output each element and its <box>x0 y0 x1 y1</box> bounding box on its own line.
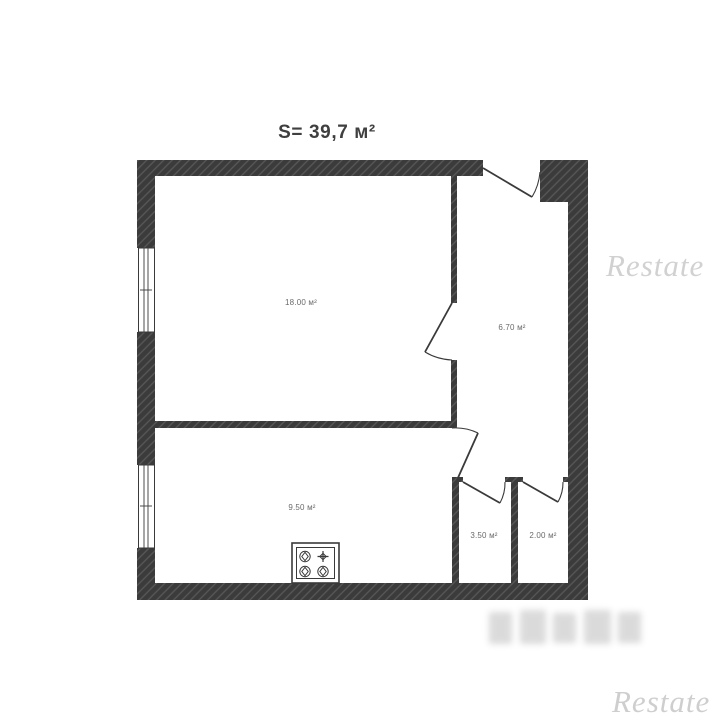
bathroom-door <box>463 482 505 503</box>
wall-top-right-segment <box>540 160 588 176</box>
room-label-toilet: 2.00 м² <box>529 531 556 540</box>
wall-right <box>568 176 588 600</box>
room-label-living-room: 18.00 м² <box>285 298 317 307</box>
wall-bathroom-toilet-divider <box>511 482 518 583</box>
stove-icon <box>292 543 339 583</box>
wall-bathroom-top-middle-stub <box>505 477 523 482</box>
watermark-restate-bottom: Restate <box>611 684 710 719</box>
burner-bottom-left <box>300 566 310 576</box>
wall-livingroom-hall-lower <box>451 360 457 428</box>
entrance-door <box>483 168 540 197</box>
wall-bottom <box>137 583 588 600</box>
window-kitchen <box>139 465 155 548</box>
wall-left-middle <box>137 332 155 465</box>
wall-livingroom-kitchen <box>155 421 451 428</box>
watermark-restate-top: Restate <box>605 248 704 283</box>
room-label-kitchen: 9.50 м² <box>288 503 315 512</box>
wall-left-lower <box>137 548 155 583</box>
burner-bottom-right <box>318 566 328 576</box>
wall-livingroom-hall-upper <box>451 176 457 303</box>
room-label-hallway: 6.70 м² <box>498 323 525 332</box>
wall-left-upper <box>137 176 155 248</box>
burner-top-left <box>300 551 310 561</box>
wall-entrance-jamb <box>540 176 568 202</box>
window-living-room <box>139 248 155 332</box>
interior-walls <box>155 176 568 583</box>
wall-top-left-segment <box>137 160 483 176</box>
floor-plan-canvas: S= 39,7 м² <box>0 0 725 725</box>
wall-bathroom-left <box>452 480 459 583</box>
faded-watermark-blocks <box>489 610 641 644</box>
toilet-door <box>523 482 563 502</box>
kitchen-door <box>452 428 478 480</box>
floor-plan-page: S= 39,7 м² <box>0 0 725 725</box>
living-room-door <box>425 303 452 360</box>
outer-walls <box>137 160 588 600</box>
burner-top-right <box>318 551 329 562</box>
wall-toilet-top-right-stub <box>563 477 568 482</box>
plan-area-title: S= 39,7 м² <box>278 122 376 143</box>
room-label-bathroom: 3.50 м² <box>470 531 497 540</box>
